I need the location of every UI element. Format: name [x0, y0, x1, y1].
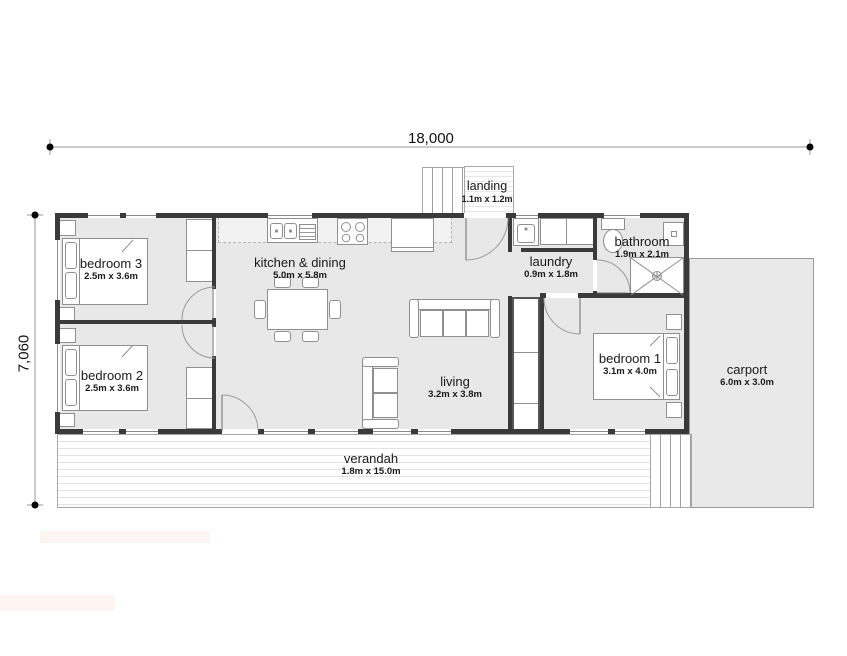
room-name: living — [428, 375, 482, 389]
dimension-height-value: 7,060 — [16, 335, 33, 373]
dimension-dots — [32, 144, 814, 509]
room-label-living: living 3.2m x 3.8m — [428, 375, 482, 401]
bedroom3-door-arc — [182, 287, 215, 320]
floor-plan: 18,000 7,060 bedroom 3 2.5m x 3.6m bedro… — [0, 0, 847, 656]
room-name: bathroom — [615, 235, 670, 249]
sink-taps — [275, 227, 528, 232]
room-label-bedroom2: bedroom 2 2.5m x 3.6m — [81, 369, 143, 395]
shower-detail — [631, 258, 683, 295]
room-name: kitchen & dining — [254, 256, 346, 270]
room-size: 2.5m x 3.6m — [81, 383, 143, 395]
dimension-height-label: 7,060 — [16, 334, 33, 374]
dimension-width-label: 18,000 — [408, 130, 454, 147]
room-size: 0.9m x 1.8m — [524, 269, 578, 281]
room-label-landing: landing 1.1m x 1.2m — [461, 179, 512, 205]
entry-door-arc — [466, 218, 508, 260]
room-size: 3.1m x 4.0m — [599, 366, 661, 378]
room-name: carport — [720, 363, 774, 377]
room-size: 1.8m x 15.0m — [341, 466, 400, 478]
verandah-door-arc — [222, 395, 258, 431]
room-label-bathroom: bathroom 1.9m x 2.1m — [615, 235, 670, 261]
bathroom-door-arc — [597, 260, 630, 293]
room-label-laundry: laundry 0.9m x 1.8m — [524, 255, 578, 281]
bedroom1-door-arc — [544, 298, 580, 334]
room-label-carport: carport 6.0m x 3.0m — [720, 363, 774, 389]
dimension-width-value: 18,000 — [408, 130, 454, 147]
room-size: 1.1m x 1.2m — [461, 193, 512, 205]
room-size: 2.5m x 3.6m — [80, 271, 142, 283]
room-name: laundry — [524, 255, 578, 269]
room-size: 6.0m x 3.0m — [720, 377, 774, 389]
dimension-lines — [27, 139, 810, 505]
room-name: verandah — [341, 452, 400, 466]
stove-burners — [342, 223, 365, 242]
room-name: bedroom 3 — [80, 257, 142, 271]
room-label-bedroom1: bedroom 1 3.1m x 4.0m — [599, 352, 661, 378]
plan-linework — [0, 0, 847, 656]
room-label-verandah: verandah 1.8m x 15.0m — [341, 452, 400, 478]
room-size: 5.0m x 5.8m — [254, 270, 346, 282]
bedroom2-door-arc — [182, 325, 215, 358]
room-name: bedroom 2 — [81, 369, 143, 383]
room-name: bedroom 1 — [599, 352, 661, 366]
room-name: landing — [461, 179, 512, 193]
bed-fold-lines — [122, 240, 660, 397]
room-label-bedroom3: bedroom 3 2.5m x 3.6m — [80, 257, 142, 283]
room-size: 1.9m x 2.1m — [615, 249, 670, 261]
room-label-kitchen-dining: kitchen & dining 5.0m x 5.8m — [254, 256, 346, 282]
room-size: 3.2m x 3.8m — [428, 389, 482, 401]
